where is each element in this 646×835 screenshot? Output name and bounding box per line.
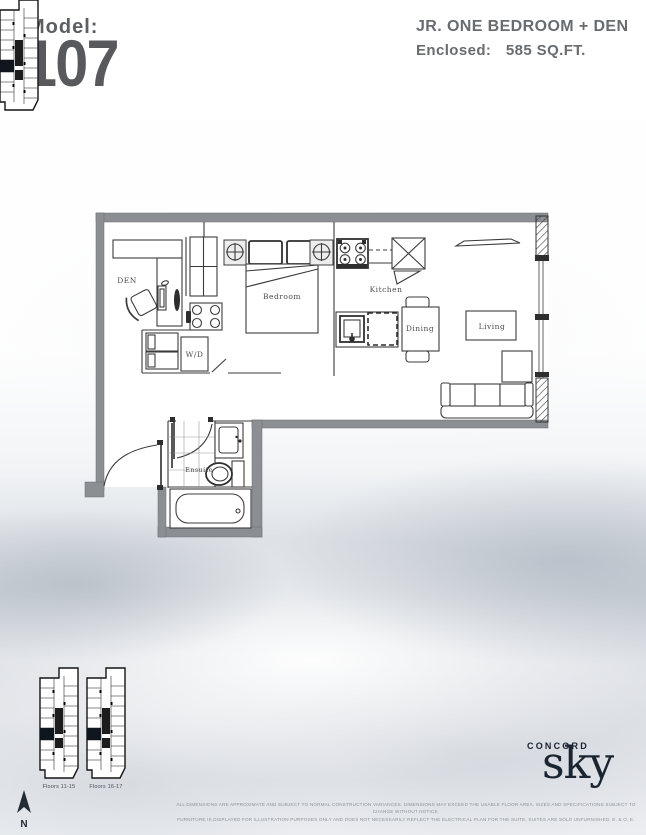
bedroom-label: Bedroom xyxy=(263,292,301,301)
den-table xyxy=(186,303,222,330)
toilet xyxy=(206,461,244,487)
nightstand-left xyxy=(224,240,246,265)
den-label: DEN xyxy=(117,276,137,285)
disclaimer: ALL DIMENSIONS ARE APPROXIMATE AND SUBJE… xyxy=(170,801,642,823)
kitchen-island xyxy=(336,312,398,347)
dining-label: Dining xyxy=(406,324,434,333)
bathtub xyxy=(170,489,251,528)
vanity-sink xyxy=(215,423,243,458)
living-label: Living xyxy=(479,322,506,331)
brand-logo: CONCORD sky xyxy=(527,741,639,782)
nightstand-right xyxy=(310,240,333,265)
keyplan-tower xyxy=(0,0,38,110)
laundry-label: W/D xyxy=(186,350,204,359)
keyplan-label-1: Floors 11-15 xyxy=(43,784,76,790)
sofa-chaise xyxy=(502,351,532,382)
north-arrow-icon xyxy=(17,790,31,813)
sofa-base xyxy=(441,405,533,418)
window-wall xyxy=(535,216,549,422)
disclaimer-line-2: FURNITURE IS DISPLAYED FOR ILLUSTRATION … xyxy=(170,816,642,823)
stove xyxy=(337,239,368,268)
north-label: N xyxy=(20,819,27,830)
kitchen-label: Kitchen xyxy=(370,285,403,294)
highlighted-unit xyxy=(0,60,14,72)
floorplan-drawing: DEN Bedroom Kitchen Dining Living W/D En… xyxy=(0,0,646,835)
floorplan-sheet: Model: 107 JR. ONE BEDROOM + DEN Enclose… xyxy=(0,0,646,835)
disclaimer-line-1: ALL DIMENSIONS ARE APPROXIMATE AND SUBJE… xyxy=(170,801,642,816)
den-closet xyxy=(190,237,217,296)
ensuite-label: Ensuite xyxy=(185,466,213,474)
keyplan-label-2: Floors 16-17 xyxy=(89,784,122,790)
brand-sky: sky xyxy=(542,745,639,782)
